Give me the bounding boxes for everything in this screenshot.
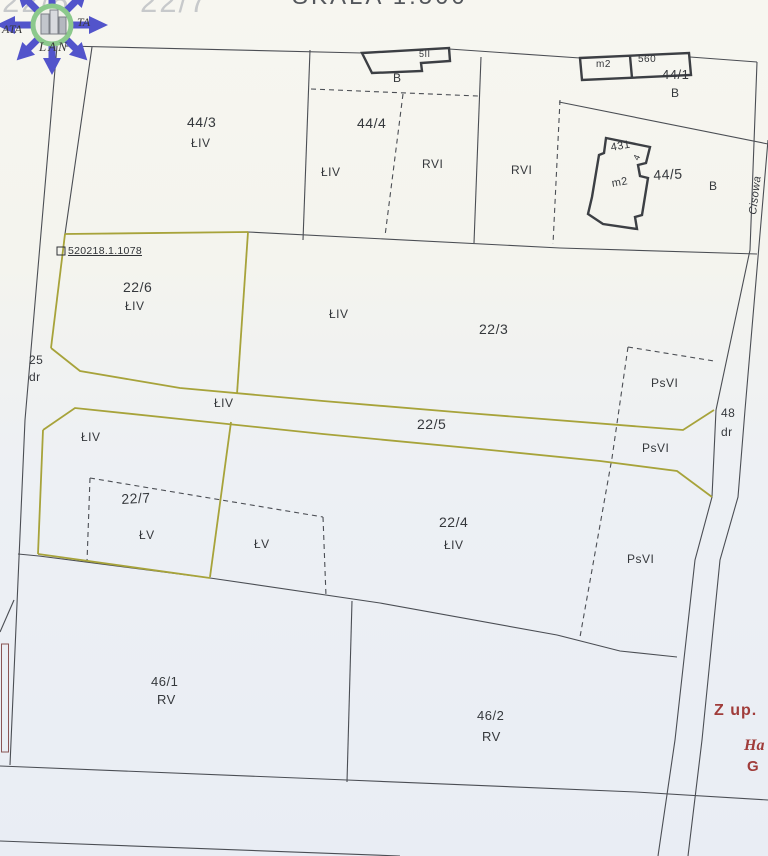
parcel-22-6-east xyxy=(237,232,248,394)
divider-46-1-46-2 xyxy=(347,601,352,782)
divider-44-4-rvi xyxy=(474,57,481,243)
parcel-label-46-1: 46/1 xyxy=(151,675,178,688)
road-label-48-dr: dr xyxy=(721,426,733,438)
landuse-label-rv-46-1: RV xyxy=(157,693,176,706)
dashed-psvi-top xyxy=(628,347,714,361)
parcel-label-22-5: 22/5 xyxy=(417,417,446,431)
block-boundary-22-46 xyxy=(18,554,677,657)
road-25-east-line xyxy=(65,47,92,234)
stamp-line-name: Ha xyxy=(744,737,764,755)
building-footprints xyxy=(362,48,691,229)
landuse-label-rv-46-2: RV xyxy=(482,730,501,743)
red-parcel-outline xyxy=(2,644,9,752)
west-corner-line xyxy=(0,600,14,632)
landuse-label-b-44-5: B xyxy=(709,180,718,192)
landuse-label-b-44-1: B xyxy=(671,87,680,99)
parcel-label-22-6: 22/6 xyxy=(123,280,152,294)
parcel-label-22-4: 22/4 xyxy=(439,515,468,529)
parcel-22-6-north xyxy=(65,232,248,234)
parcel-label-44-1: 44/1 xyxy=(662,68,689,81)
landuse-label-liv-44-4: ŁIV xyxy=(321,166,341,178)
boundary-44-1-south xyxy=(559,102,768,144)
building-label-5ii: 5II xyxy=(419,50,431,59)
road-label-25: 25 xyxy=(29,354,43,366)
parcel-22-5-south xyxy=(43,408,712,497)
landuse-label-psvi-north: PsVI xyxy=(651,377,678,389)
parcel-label-22-7: 22/7 xyxy=(121,490,151,506)
landuse-label-liv-22-6: ŁIV xyxy=(125,300,145,312)
landuse-label-liv-22-5: ŁIV xyxy=(214,397,234,409)
landuse-label-lv-22-7: ŁV xyxy=(139,529,155,541)
landuse-label-liv-22-3: ŁIV xyxy=(329,308,349,320)
parcel-22-7-south xyxy=(38,554,210,578)
logo-text-bottom: LAN xyxy=(38,39,69,54)
parcel-22-7-east xyxy=(210,422,231,577)
road-25-west-line xyxy=(10,46,57,765)
logo-text-right: TA xyxy=(77,15,91,29)
road-label-48: 48 xyxy=(721,407,735,419)
dashed-psvi-west xyxy=(580,347,628,637)
building-top-center xyxy=(362,48,450,73)
parcel-22-7-west xyxy=(38,430,43,554)
landuse-label-psvi-south: PsVI xyxy=(627,553,654,565)
landuse-label-liv-44-3: ŁIV xyxy=(191,137,211,149)
landuse-label-rvi-44-4: RVI xyxy=(422,158,443,170)
landuse-label-liv-22-4: ŁIV xyxy=(444,539,464,551)
block-boundary-44-22 xyxy=(65,232,757,254)
parcel-label-44-3: 44/3 xyxy=(187,115,216,129)
parcel-22-6-west xyxy=(51,234,65,348)
parcel-22-5-north xyxy=(51,348,714,430)
parcel-label-46-2: 46/2 xyxy=(477,709,504,722)
geodesy-logo: ATA TA LAN xyxy=(0,0,108,75)
landuse-label-psvi-mid: PsVI xyxy=(642,442,669,454)
landuse-label-liv-west: ŁIV xyxy=(81,431,101,443)
south-strip-bottom-line xyxy=(0,841,400,856)
stamp-line-z-up: Z up. xyxy=(714,702,757,720)
dashed-rvi-44-5-split xyxy=(553,100,560,244)
building-label-560: 560 xyxy=(638,55,656,65)
dashed-lv-right xyxy=(323,517,326,596)
dashed-landuse-lines xyxy=(87,89,714,637)
building-label-m2-560: m2 xyxy=(596,60,611,70)
dashed-lv-left xyxy=(87,478,90,562)
landuse-label-b-top: B xyxy=(393,72,402,84)
parcel-label-44-4: 44/4 xyxy=(357,116,386,130)
logo-text-left: ATA xyxy=(1,22,23,36)
road-label-25-dr: dr xyxy=(29,371,41,383)
parcel-label-22-3: 22/3 xyxy=(479,322,508,336)
landuse-label-rvi-east: RVI xyxy=(511,164,532,176)
survey-point-id: 520218.1.1078 xyxy=(68,245,142,257)
divider-44-3-44-4 xyxy=(303,50,310,240)
dashed-44-4-split xyxy=(385,94,403,236)
stamp-line-g: G xyxy=(747,758,759,775)
landuse-label-lv-east: ŁV xyxy=(254,538,270,550)
south-strip-top-line xyxy=(0,766,768,800)
cadastral-map-scan: 22/6 22/7 SKALA 1:500 xyxy=(0,0,768,856)
parcel-label-44-5: 44/5 xyxy=(653,166,683,182)
dashed-b-strip xyxy=(311,89,478,96)
